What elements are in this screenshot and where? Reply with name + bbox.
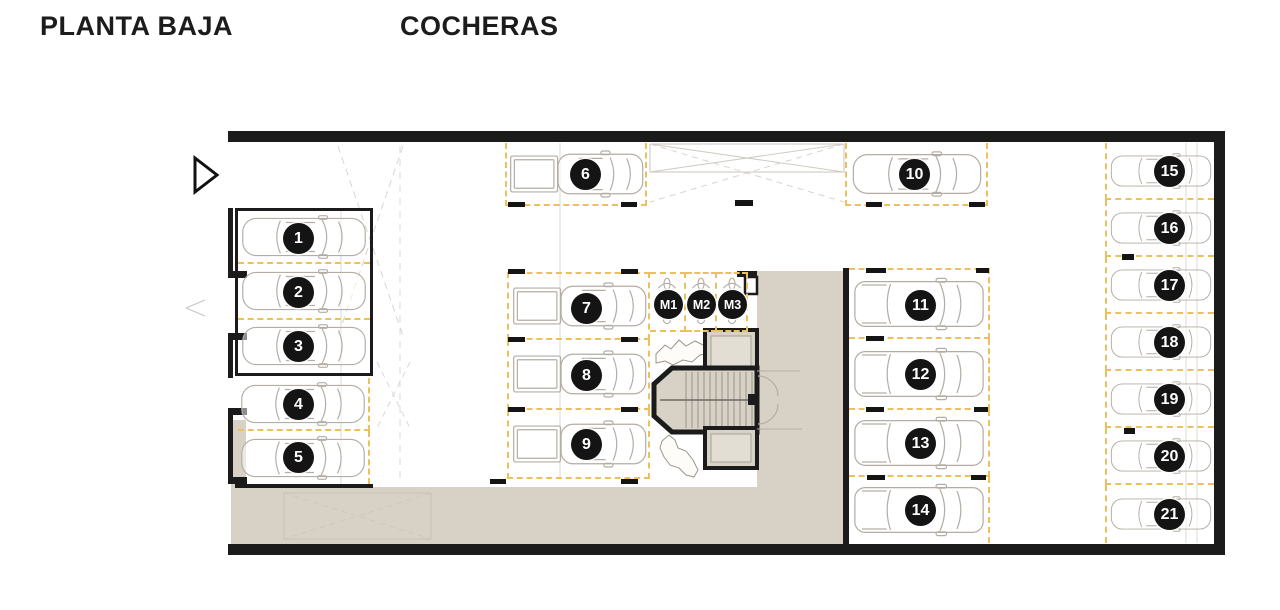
spot-number-badge: 9 bbox=[571, 429, 602, 460]
stripe-tick bbox=[508, 202, 525, 207]
floor-plan-page: PLANTA BAJA COCHERAS bbox=[0, 0, 1280, 610]
wall-under-spot5 bbox=[235, 484, 373, 488]
parking-spot-13: 13 bbox=[849, 410, 990, 477]
parking-spot-3: 3 bbox=[238, 320, 370, 372]
stripe-tick bbox=[490, 479, 506, 484]
wall-left bbox=[228, 333, 233, 378]
stripe-tick bbox=[976, 268, 989, 273]
wall-left bbox=[228, 408, 233, 484]
spot-number-badge: 18 bbox=[1154, 327, 1185, 358]
parking-spot-6: 6 bbox=[505, 143, 647, 206]
spot-number-badge: 17 bbox=[1154, 270, 1185, 301]
stripe-tick bbox=[971, 475, 986, 480]
parking-spot-9: 9 bbox=[507, 410, 650, 479]
parking-spot-16: 16 bbox=[1105, 200, 1214, 257]
stripe-tick bbox=[621, 269, 638, 274]
grid-lines bbox=[341, 143, 1197, 543]
parking-spot-m2: M2 bbox=[686, 272, 717, 332]
parking-spot-11: 11 bbox=[849, 268, 990, 339]
stripe-tick bbox=[1122, 254, 1134, 260]
parking-spot-12: 12 bbox=[849, 339, 990, 410]
spot-number-badge: 12 bbox=[905, 359, 936, 390]
parking-spot-20: 20 bbox=[1105, 428, 1214, 485]
parking-spot-m1: M1 bbox=[650, 272, 686, 332]
stripe-tick bbox=[969, 202, 985, 207]
spot-number-badge: 8 bbox=[571, 360, 602, 391]
parking-spot-14: 14 bbox=[849, 477, 990, 543]
parking-spot-21: 21 bbox=[1105, 485, 1214, 543]
floor-title: PLANTA BAJA bbox=[40, 11, 233, 42]
spot-number-badge: 6 bbox=[570, 159, 601, 190]
spot-number-badge: 16 bbox=[1154, 213, 1185, 244]
stripe-tick bbox=[735, 200, 753, 206]
wall-right bbox=[1214, 131, 1225, 555]
parking-spot-m3: M3 bbox=[717, 272, 748, 332]
stripe-tick bbox=[508, 337, 525, 342]
stripe-tick bbox=[866, 336, 884, 341]
wall-left bbox=[228, 208, 233, 278]
parking-spot-1: 1 bbox=[238, 212, 370, 264]
stripe-tick bbox=[621, 337, 638, 342]
spot-number-badge: 14 bbox=[905, 495, 936, 526]
stripe-tick bbox=[508, 269, 525, 274]
spot-number-badge: 2 bbox=[283, 277, 314, 308]
spot-number-badge: 1 bbox=[283, 223, 314, 254]
parking-spot-19: 19 bbox=[1105, 371, 1214, 428]
spot-number-badge: 4 bbox=[283, 389, 314, 420]
stripe-tick bbox=[867, 475, 885, 480]
stripe-tick bbox=[621, 407, 638, 412]
parking-spot-5: 5 bbox=[238, 431, 370, 484]
spot-number-badge: 10 bbox=[899, 159, 930, 190]
parking-spot-4: 4 bbox=[238, 378, 370, 431]
stripe-tick bbox=[866, 407, 884, 412]
parking-spot-17: 17 bbox=[1105, 257, 1214, 314]
stripe-tick bbox=[621, 202, 637, 207]
parking-spot-2: 2 bbox=[238, 264, 370, 320]
leader-mark bbox=[186, 300, 205, 316]
spot-number-badge: 21 bbox=[1154, 499, 1185, 530]
spot-number-badge: M3 bbox=[718, 290, 747, 319]
stripe-tick bbox=[866, 268, 886, 273]
spot-number-badge: 11 bbox=[905, 290, 936, 321]
stripe-tick bbox=[866, 202, 882, 207]
spot-number-badge: 3 bbox=[283, 331, 314, 362]
entrance-arrow-icon bbox=[195, 158, 217, 192]
parking-spot-7: 7 bbox=[507, 272, 650, 340]
spot-number-badge: M1 bbox=[654, 290, 683, 319]
spot-number-badge: 7 bbox=[571, 293, 602, 324]
spot-number-badge: 15 bbox=[1154, 156, 1185, 187]
parking-spot-10: 10 bbox=[845, 143, 988, 206]
stripe-tick bbox=[508, 407, 525, 412]
parking-spot-18: 18 bbox=[1105, 314, 1214, 371]
spot-number-badge: M2 bbox=[687, 290, 716, 319]
wall-bottom bbox=[228, 544, 1225, 555]
stripe-tick bbox=[974, 407, 988, 412]
spot-number-badge: 20 bbox=[1154, 441, 1185, 472]
spot-number-badge: 5 bbox=[283, 442, 314, 473]
stripe-tick bbox=[1124, 428, 1135, 434]
parking-spot-8: 8 bbox=[507, 340, 650, 410]
parking-spot-15: 15 bbox=[1105, 143, 1214, 200]
spot-number-badge: 19 bbox=[1154, 384, 1185, 415]
area-title: COCHERAS bbox=[400, 11, 559, 42]
stripe-tick bbox=[621, 479, 638, 484]
wall-top bbox=[228, 131, 1225, 142]
door-swing bbox=[758, 376, 778, 424]
spot-number-badge: 13 bbox=[905, 428, 936, 459]
